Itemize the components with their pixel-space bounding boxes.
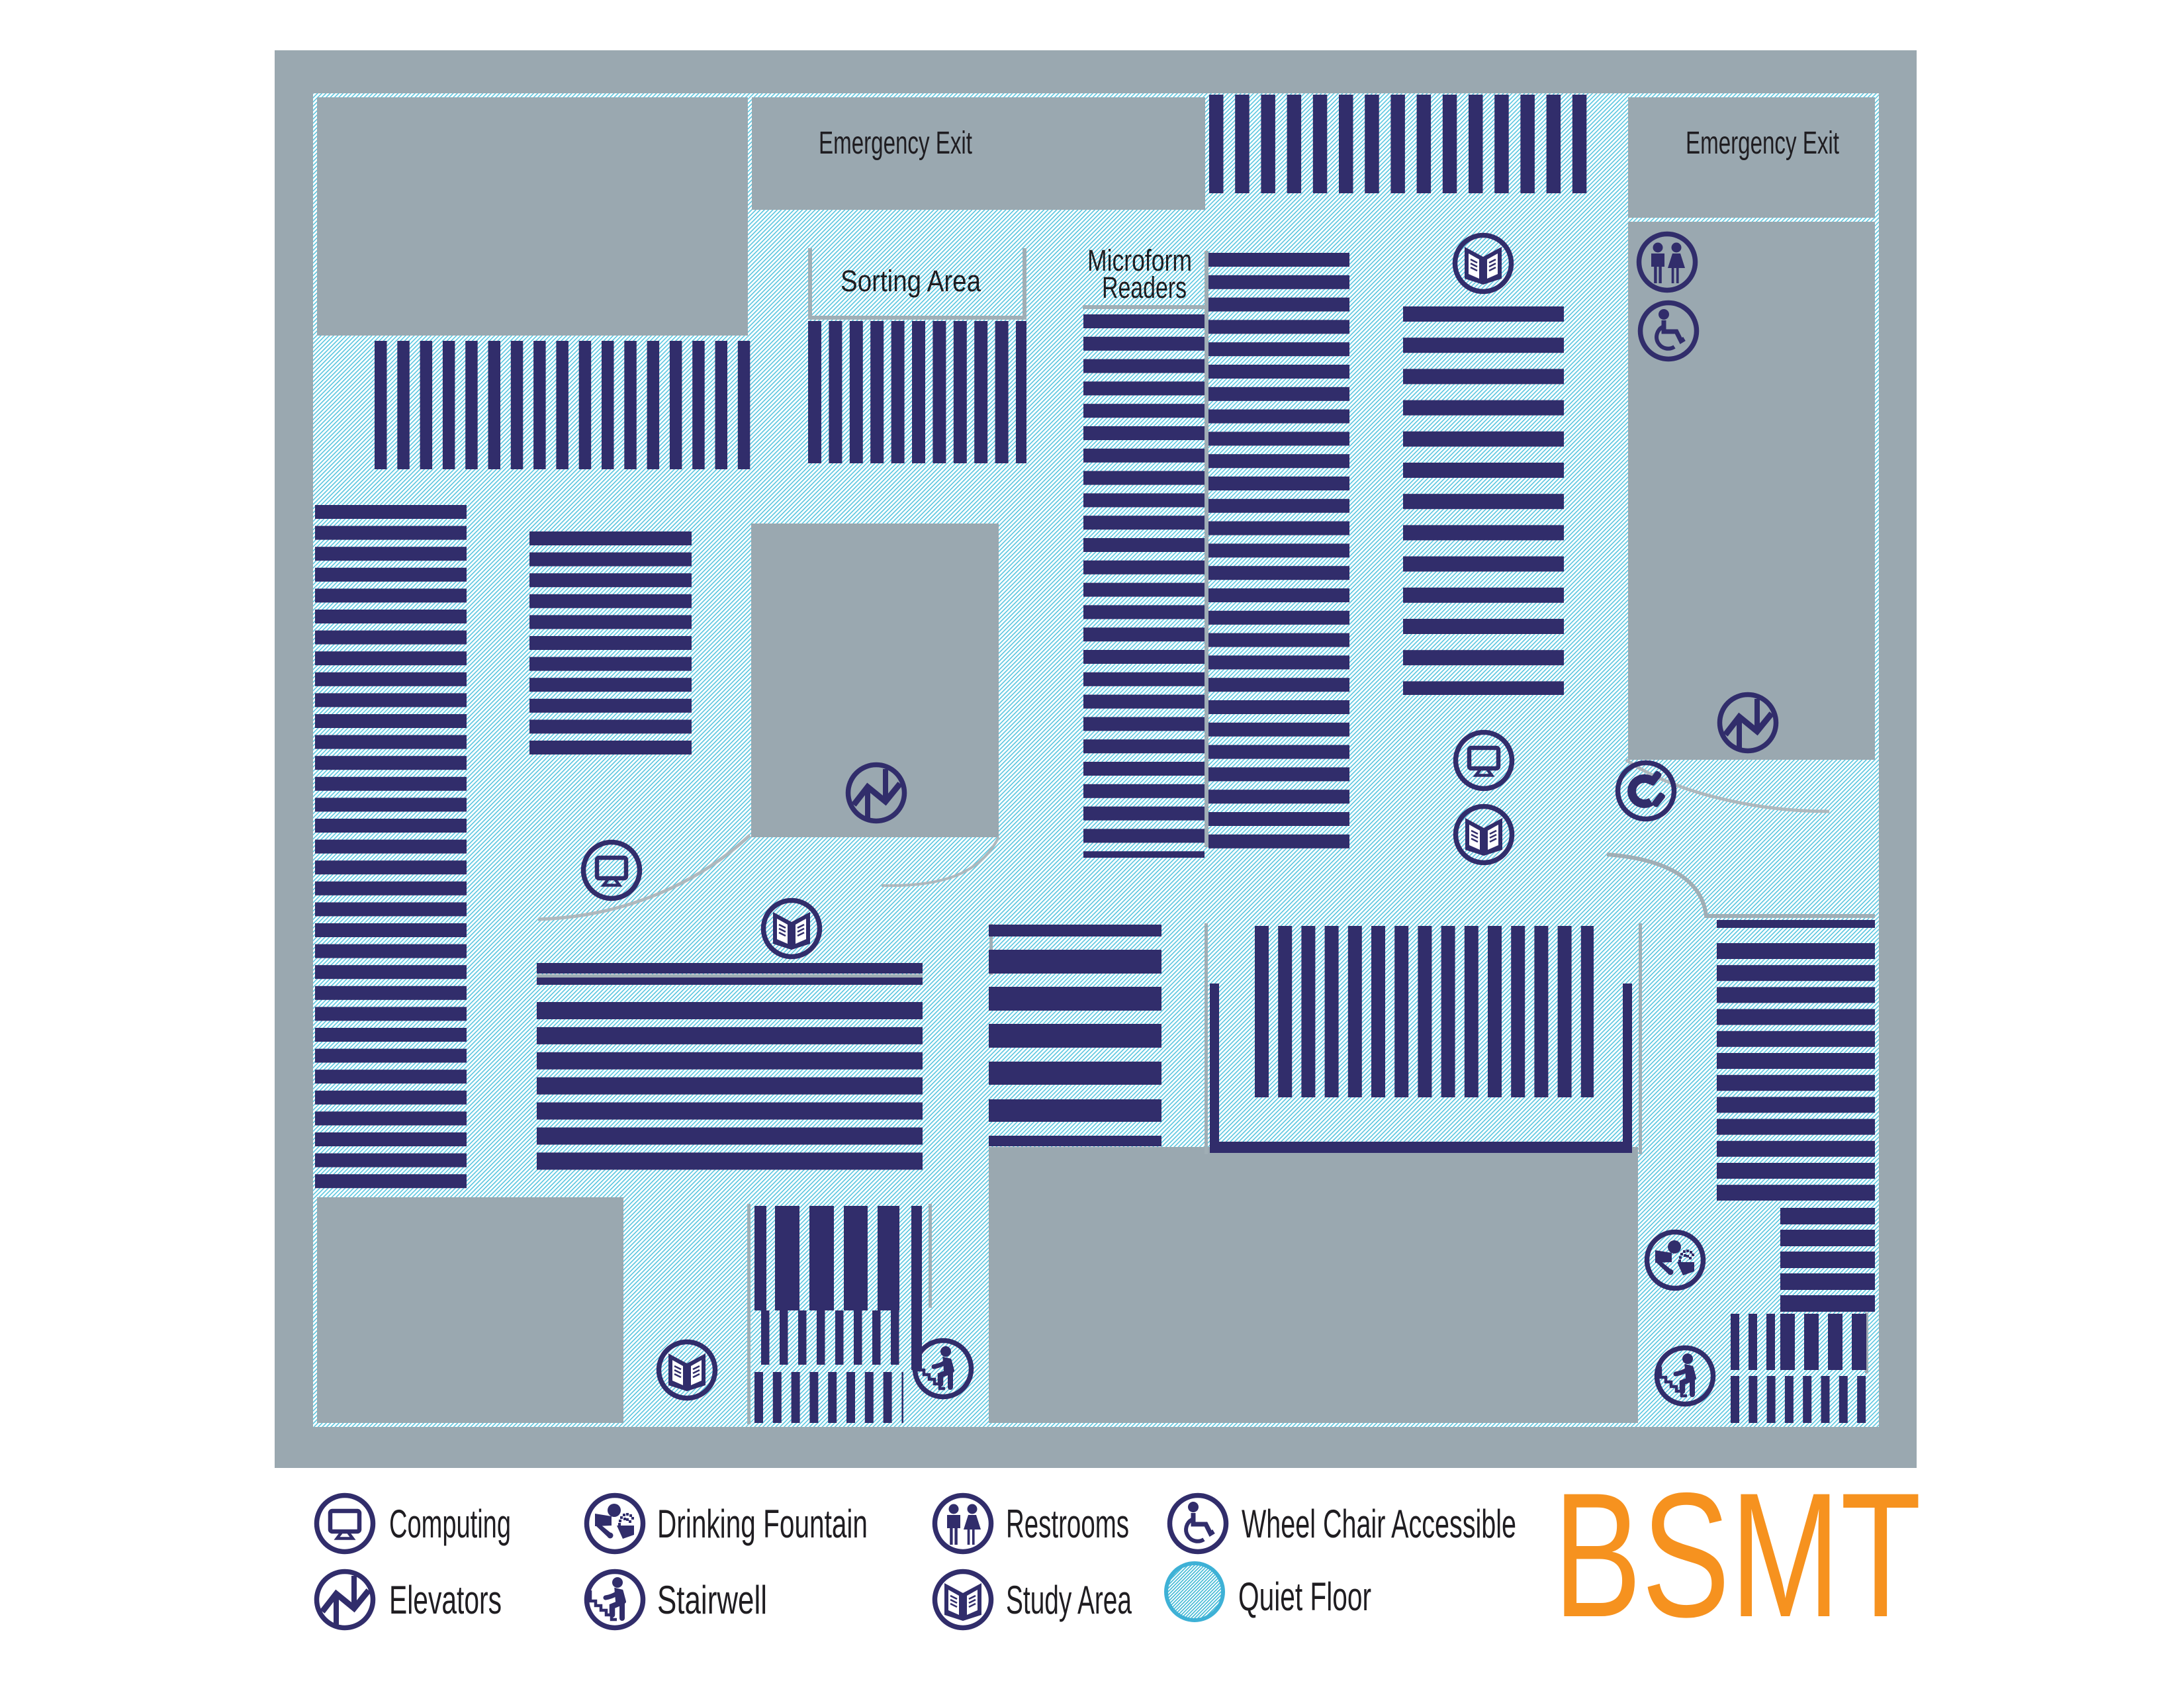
svg-text:Elevators: Elevators bbox=[389, 1578, 502, 1622]
svg-text:Readers: Readers bbox=[1102, 271, 1187, 304]
svg-text:Study Area: Study Area bbox=[1006, 1578, 1132, 1622]
svg-text:Quiet Floor: Quiet Floor bbox=[1238, 1575, 1371, 1619]
svg-text:Drinking Fountain: Drinking Fountain bbox=[657, 1502, 868, 1546]
svg-text:BSMT: BSMT bbox=[1553, 1455, 1921, 1654]
svg-text:Emergency Exit: Emergency Exit bbox=[1686, 126, 1839, 161]
svg-text:Emergency Exit: Emergency Exit bbox=[819, 126, 972, 161]
svg-text:Computing: Computing bbox=[389, 1502, 511, 1546]
svg-text:Sorting Area: Sorting Area bbox=[841, 264, 981, 298]
svg-text:Wheel Chair Accessible: Wheel Chair Accessible bbox=[1242, 1502, 1516, 1546]
svg-text:Stairwell: Stairwell bbox=[657, 1578, 767, 1622]
svg-text:Restrooms: Restrooms bbox=[1006, 1502, 1129, 1546]
